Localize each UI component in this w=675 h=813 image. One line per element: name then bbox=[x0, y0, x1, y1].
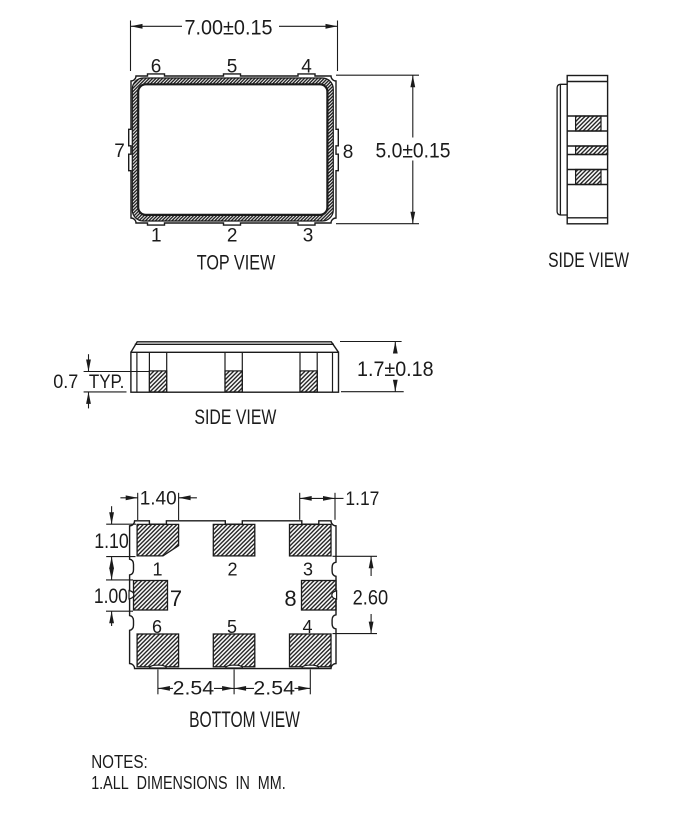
svg-text:4: 4 bbox=[301, 56, 312, 77]
svg-text:7.00±0.15: 7.00±0.15 bbox=[185, 17, 273, 40]
svg-text:7: 7 bbox=[170, 586, 182, 611]
svg-text:2.54: 2.54 bbox=[253, 679, 295, 700]
svg-text:1: 1 bbox=[152, 560, 162, 580]
svg-text:2.54: 2.54 bbox=[173, 679, 215, 700]
svg-text:1.00: 1.00 bbox=[94, 585, 128, 608]
svg-text:SIDE VIEW: SIDE VIEW bbox=[194, 405, 277, 429]
svg-text:8: 8 bbox=[284, 586, 296, 611]
svg-text:5: 5 bbox=[227, 617, 237, 637]
svg-text:NOTES:: NOTES: bbox=[91, 752, 148, 772]
svg-text:1.17: 1.17 bbox=[345, 489, 379, 510]
svg-text:7: 7 bbox=[114, 141, 125, 162]
svg-text:4: 4 bbox=[302, 617, 312, 637]
svg-text:TYP.: TYP. bbox=[89, 371, 125, 393]
svg-text:5.0±0.15: 5.0±0.15 bbox=[376, 140, 451, 163]
svg-text:3: 3 bbox=[303, 226, 314, 247]
svg-text:SIDE VIEW: SIDE VIEW bbox=[548, 248, 630, 272]
svg-text:1.40: 1.40 bbox=[140, 489, 177, 510]
svg-text:6: 6 bbox=[152, 617, 162, 637]
svg-text:1: 1 bbox=[151, 226, 162, 247]
svg-text:3: 3 bbox=[303, 560, 313, 580]
svg-text:TOP VIEW: TOP VIEW bbox=[197, 251, 276, 275]
svg-text:BOTTOM VIEW: BOTTOM VIEW bbox=[189, 707, 300, 732]
svg-text:2: 2 bbox=[227, 226, 238, 247]
svg-text:2.60: 2.60 bbox=[353, 587, 389, 610]
svg-text:1.7±0.18: 1.7±0.18 bbox=[357, 358, 434, 381]
svg-text:1.ALL DIMENSIONS IN MM.: 1.ALL DIMENSIONS IN MM. bbox=[91, 773, 286, 793]
svg-text:2: 2 bbox=[227, 560, 237, 580]
svg-text:0.7: 0.7 bbox=[53, 371, 78, 393]
svg-text:6: 6 bbox=[151, 56, 162, 77]
svg-text:8: 8 bbox=[343, 142, 354, 163]
svg-text:1.10: 1.10 bbox=[94, 530, 129, 553]
svg-text:5: 5 bbox=[227, 56, 238, 77]
